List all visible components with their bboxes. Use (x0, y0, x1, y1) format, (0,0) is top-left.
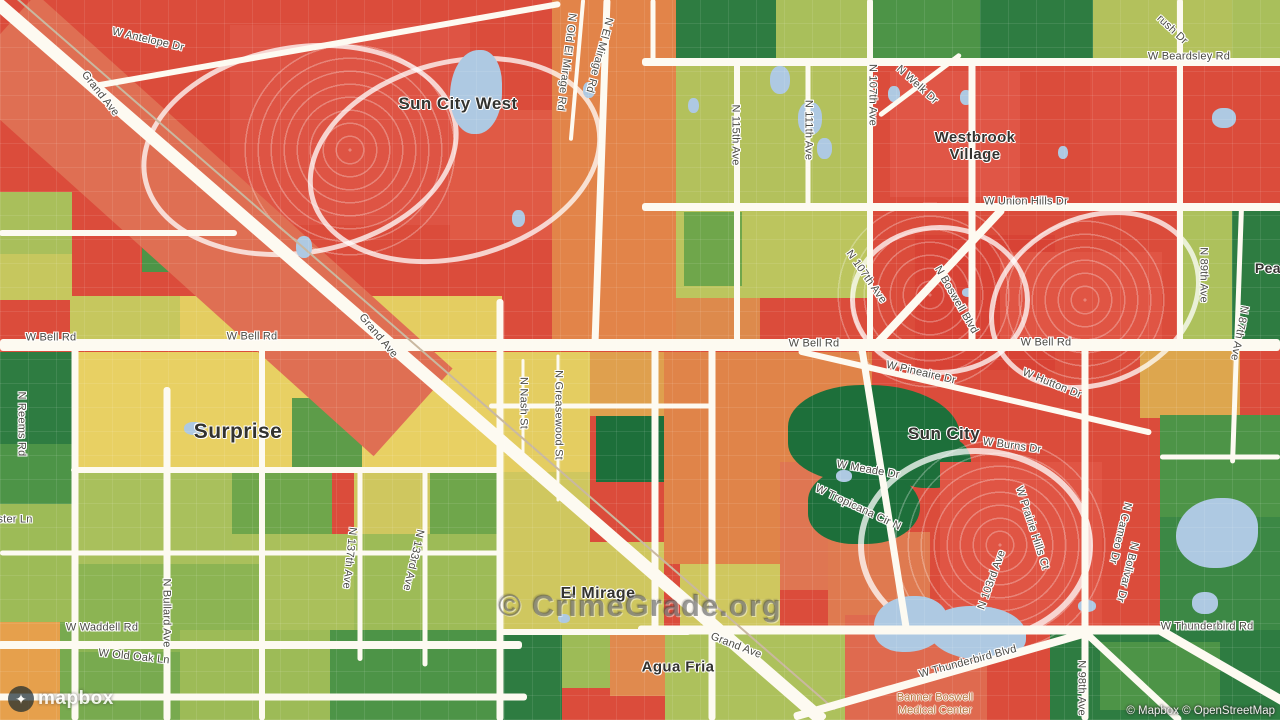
road (164, 387, 171, 720)
choropleth-region (562, 634, 610, 688)
water-body (1176, 498, 1258, 568)
road (71, 467, 503, 473)
choropleth-region (0, 192, 72, 254)
road (423, 470, 428, 667)
road-label: N 111th Ave (802, 100, 815, 160)
water-body (512, 210, 525, 227)
road (72, 344, 79, 720)
road-label: ster Ln (0, 514, 33, 527)
water-body (450, 50, 502, 134)
city-label: Surprise (194, 420, 282, 444)
choropleth-region (1090, 62, 1180, 207)
water-body (1058, 146, 1068, 159)
road (497, 299, 504, 720)
water-body (1192, 592, 1218, 614)
road (499, 629, 691, 635)
road-label: N 107th Ave (866, 64, 879, 126)
mapbox-logo[interactable]: ✦ mapbox (8, 686, 114, 712)
choropleth-region (0, 254, 72, 300)
road-label: W Bell Rd (26, 332, 77, 345)
road-label: W Thunderbird Rd (1161, 621, 1254, 634)
choropleth-region (676, 298, 760, 345)
choropleth-region (354, 472, 430, 534)
choropleth-region (1232, 0, 1280, 62)
choropleth-region (0, 444, 72, 504)
choropleth-region (430, 472, 502, 534)
crime-map[interactable]: © CrimeGrade.org © Mapbox © OpenStreetMa… (0, 0, 1280, 720)
road-label: N Greasewood St (552, 370, 565, 460)
water-body (1212, 108, 1236, 128)
choropleth-region (980, 0, 1093, 62)
mapbox-wordmark: mapbox (38, 688, 114, 710)
choropleth-region (676, 0, 776, 62)
road-label: W Bell Rd (789, 338, 840, 351)
road-label: W Waddell Rd (66, 622, 138, 635)
city-label: Peac (1255, 260, 1280, 276)
choropleth-region (232, 472, 332, 534)
city-label: Westbrook Village (935, 129, 1016, 164)
road (358, 469, 363, 661)
water-body (688, 98, 699, 113)
choropleth-region (776, 0, 870, 62)
choropleth-region (354, 534, 502, 630)
map-attribution-links[interactable]: © Mapbox © OpenStreetMap (1126, 705, 1275, 717)
road-label: N 115th Ave (729, 104, 742, 165)
road (0, 230, 237, 236)
water-body (770, 66, 790, 94)
road-label: N 98th Ave (1075, 660, 1088, 716)
road-label: W Bell Rd (227, 331, 278, 344)
road (969, 61, 976, 346)
mapbox-logo-icon: ✦ (8, 686, 34, 712)
poi-label: Banner Boswell Medical Center (897, 691, 973, 716)
city-label: Sun City West (398, 94, 517, 114)
crimegrade-watermark: © CrimeGrade.org (498, 588, 781, 624)
choropleth-region (70, 296, 180, 345)
road-label: N Reems Rd (15, 392, 28, 457)
road-label: W Union Hills Dr (984, 196, 1068, 209)
city-label: Agua Fria (642, 658, 715, 675)
city-label: Sun City (908, 424, 980, 444)
water-body (817, 138, 832, 159)
road (734, 61, 740, 346)
road-label: W Beardsley Rd (1148, 51, 1230, 64)
road (1160, 455, 1280, 460)
choropleth-region (870, 0, 980, 62)
road-label: N Nash St (517, 377, 530, 429)
road-label: N 89th Ave (1197, 247, 1210, 303)
choropleth-region (664, 352, 780, 564)
choropleth-region (0, 352, 72, 444)
road (259, 344, 265, 720)
road-label: W Bell Rd (1021, 337, 1072, 350)
road (651, 0, 656, 63)
road-label: N Bullard Ave (160, 578, 173, 647)
